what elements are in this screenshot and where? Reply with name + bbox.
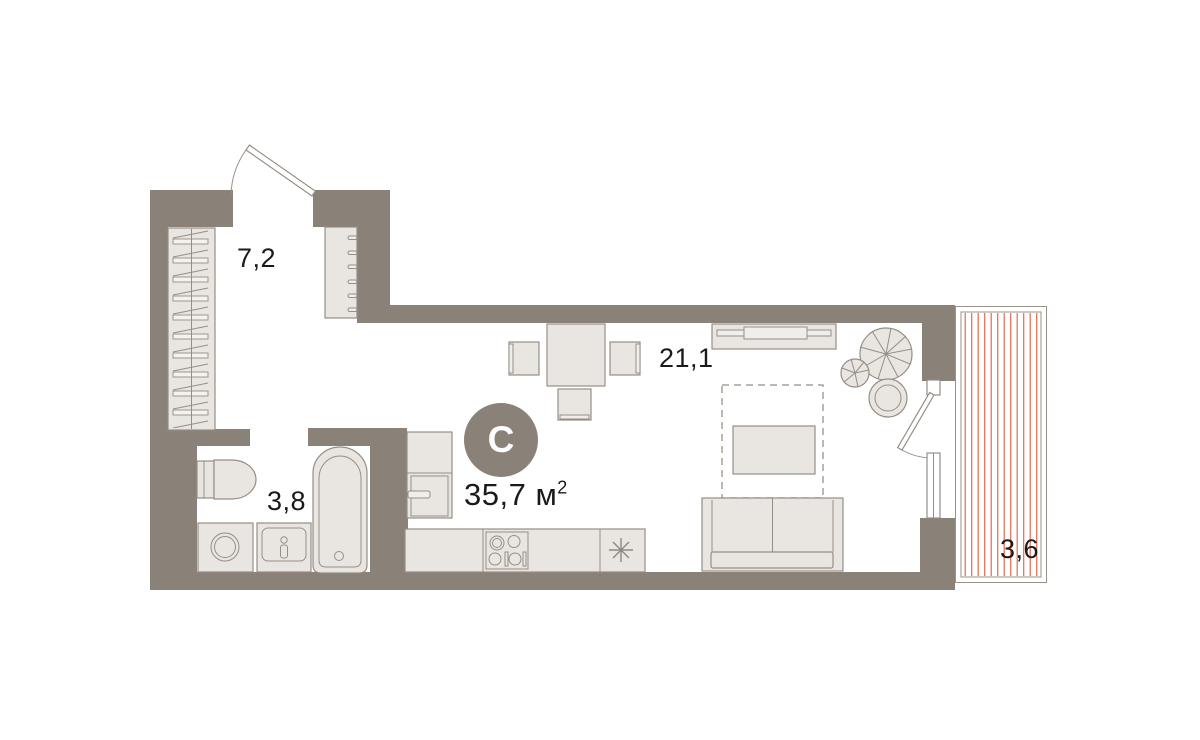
plant-fan-small	[841, 359, 869, 387]
chair-left	[509, 342, 539, 375]
wall-bathroom-left	[150, 446, 197, 572]
total-area-label: 35,7 м2	[464, 477, 568, 513]
north-compass-letter: С	[488, 419, 515, 461]
hook	[348, 308, 357, 312]
north-compass: С	[464, 403, 538, 477]
wall-bathroom-lintel	[308, 428, 407, 446]
kitchen-counter	[405, 529, 645, 572]
balcony-area-label: 3,6	[1000, 534, 1039, 565]
wall-top-left	[150, 190, 233, 227]
wall-entry-right	[313, 190, 390, 227]
hook	[348, 251, 357, 255]
bed-placement	[722, 385, 823, 498]
coat-rack	[325, 227, 357, 318]
wall-left-upper	[150, 227, 168, 430]
window	[927, 453, 940, 518]
sofa	[702, 498, 843, 571]
bathroom-sink	[257, 523, 311, 572]
living-area-label: 21,1	[659, 343, 714, 374]
total-area-unit: м	[535, 477, 557, 512]
chair-right	[610, 342, 640, 375]
bathtub	[313, 447, 367, 573]
entry-door-swing-arc	[231, 150, 246, 196]
total-area-sup: 2	[557, 478, 568, 498]
entry-door-leaf	[246, 145, 315, 196]
fridge-column	[407, 432, 452, 518]
wardrobe	[168, 228, 215, 430]
tv	[744, 327, 807, 339]
dining-table	[547, 324, 605, 386]
floor-plan-drawing	[0, 0, 1200, 740]
total-area-value: 35,7	[464, 477, 526, 512]
chair-bottom	[558, 389, 591, 420]
wall-right-stub	[920, 518, 955, 572]
bed-table	[733, 426, 815, 474]
wall-top-main	[357, 305, 955, 323]
hook	[348, 294, 357, 298]
fridge-handle	[408, 491, 430, 498]
toilet	[197, 460, 256, 499]
sofa-backrest	[711, 552, 833, 568]
washing-machine	[198, 523, 253, 572]
plant-round	[869, 379, 907, 417]
hook	[348, 280, 357, 284]
wall-bottom	[150, 572, 955, 590]
hallway-area-label: 7,2	[237, 243, 276, 274]
tv-console	[712, 324, 836, 349]
entry-door	[231, 145, 315, 196]
wall-bathroom-top-left	[150, 429, 250, 446]
wall-bathroom-kitchen	[370, 445, 408, 572]
floor-plan: 7,2 3,8 21,1 3,6 С 35,7 м2	[0, 0, 1200, 740]
hook	[348, 236, 357, 240]
wall-right-upper	[922, 323, 955, 381]
bathroom-area-label: 3,8	[267, 486, 306, 517]
hook	[348, 265, 357, 269]
